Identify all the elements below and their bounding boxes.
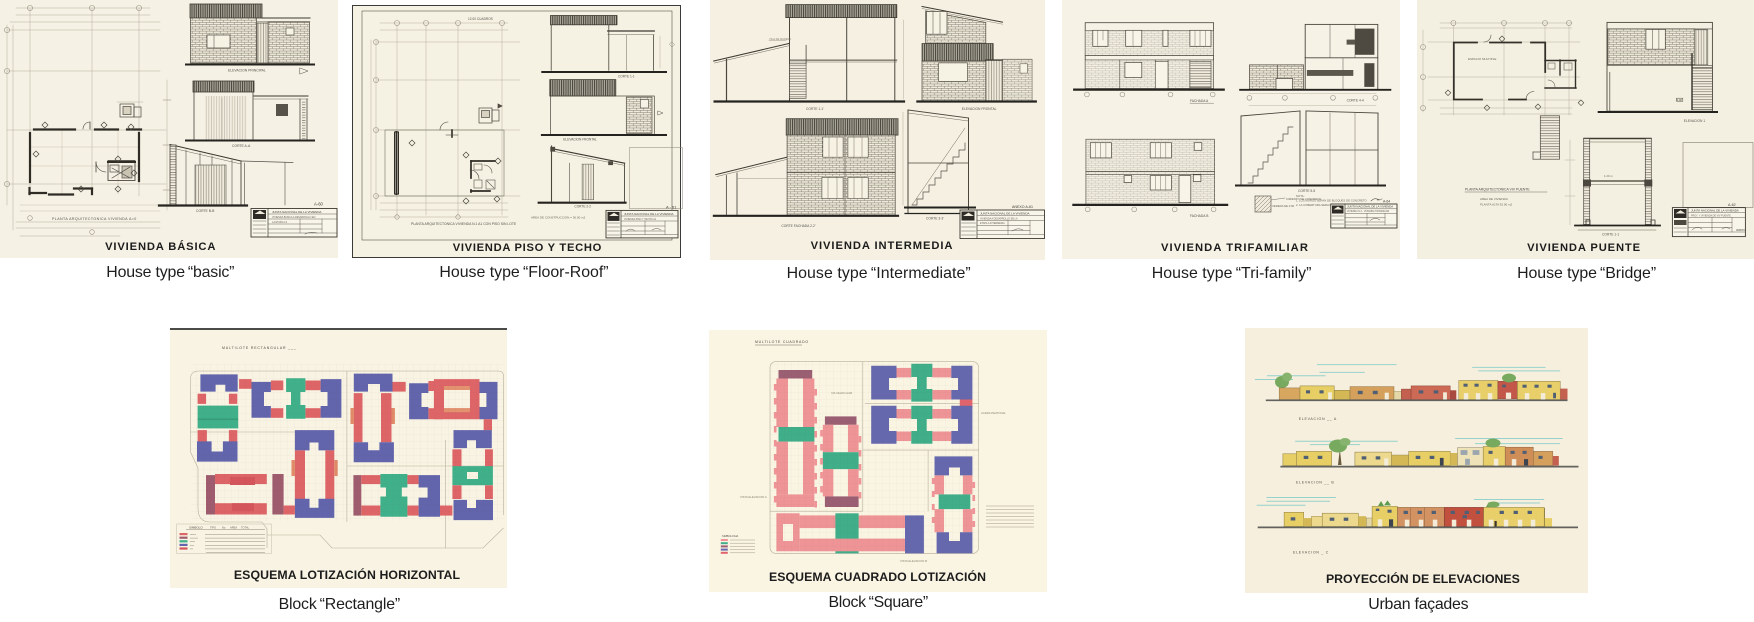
svg-text:A-64: A-64 bbox=[1383, 200, 1390, 204]
svg-text:ESPACIO MULTIPLE: ESPACIO MULTIPLE bbox=[1468, 57, 1496, 61]
svg-text:PLANTA ARQUITECTONICA VIV PU: PLANTA ARQUITECTONICA VIV PUENTE bbox=[1465, 188, 1530, 192]
svg-text:ACERA PEATONAL: ACERA PEATONAL bbox=[981, 411, 1006, 415]
svg-text:CORTE FACHADA 2-2': CORTE FACHADA 2-2' bbox=[781, 224, 815, 228]
svg-text:VISTA ELEVACION B: VISTA ELEVACION B bbox=[900, 559, 927, 563]
svg-text:ETAPA A INTERMEDIA: ETAPA A INTERMEDIA bbox=[980, 222, 1005, 225]
svg-text:JUNTA NACIONAL DE LA VIVIENDA: JUNTA NACIONAL DE LA VIVIENDA bbox=[1691, 208, 1739, 212]
svg-text:CORTE A-A: CORTE A-A bbox=[232, 144, 251, 148]
svg-text:CORTE 2-2: CORTE 2-2 bbox=[574, 205, 591, 209]
svg-text:ELEVACION __ B: ELEVACION __ B bbox=[1296, 481, 1335, 485]
svg-text:AREA DE VIVIENDA: AREA DE VIVIENDA bbox=[1480, 197, 1508, 201]
svg-text:JUNTA NACIONAL DE LA VIVIENDA: JUNTA NACIONAL DE LA VIVIENDA bbox=[272, 210, 322, 214]
svg-text:VIVIENDA A DESARROLLO EN LA: VIVIENDA A DESARROLLO EN LA bbox=[980, 217, 1018, 220]
svg-text:VIVIENDA BASICA A DESARROLLO E: VIVIENDA BASICA A DESARROLLO EN bbox=[272, 216, 316, 219]
svg-text:PLANTA ALTA 35.00 m2: PLANTA ALTA 35.00 m2 bbox=[1480, 203, 1513, 207]
svg-text:1.20 m: 1.20 m bbox=[1604, 174, 1613, 178]
svg-text:A-62: A-62 bbox=[1728, 203, 1736, 207]
svg-text:ELEVACION _ C: ELEVACION _ C bbox=[1293, 551, 1329, 555]
svg-text:JUNTA NACIONAL DE LA VIVIENDA: JUNTA NACIONAL DE LA VIVIENDA bbox=[1347, 205, 1393, 209]
svg-text:MULTILOTE CUADRADO: MULTILOTE CUADRADO bbox=[755, 340, 809, 344]
svg-text:300070: 300070 bbox=[1736, 228, 1745, 232]
svg-text:CORTE 3-3': CORTE 3-3' bbox=[926, 217, 944, 221]
svg-text:JUNTA NACIONAL DE LA VIVIENDA: JUNTA NACIONAL DE LA VIVIENDA bbox=[624, 212, 674, 216]
svg-text:VIGA DE MADERA: VIGA DE MADERA bbox=[769, 37, 791, 41]
svg-text:A-60: A-60 bbox=[314, 202, 324, 207]
svg-text:VIVIENDA N.3 - VIVIENDA TRIF: VIVIENDA N.3 - VIVIENDA TRIFAMILIAR bbox=[1347, 210, 1390, 213]
svg-text:NOTA :: NOTA : bbox=[1296, 194, 1305, 198]
svg-text:ELEVACION __ A: ELEVACION __ A bbox=[1299, 417, 1337, 421]
svg-text:CORTE 1-1': CORTE 1-1' bbox=[806, 107, 824, 111]
svg-text:VEREDA DE 0.60: VEREDA DE 0.60 bbox=[1272, 204, 1295, 208]
svg-text:ELEVACION 1: ELEVACION 1 bbox=[1684, 119, 1706, 123]
svg-text:ANEXO A-61: ANEXO A-61 bbox=[1012, 205, 1033, 209]
svg-text:CORTE 5-5: CORTE 5-5 bbox=[1298, 189, 1315, 193]
svg-text:VIVIENDA PISO Y TECHO A1: VIVIENDA PISO Y TECHO A1 bbox=[624, 218, 657, 221]
svg-text:AREA: AREA bbox=[230, 526, 237, 530]
svg-text:ELEVACION PRINCIPAL: ELEVACION PRINCIPAL bbox=[228, 69, 266, 73]
svg-text:SIMBOLOGIA: SIMBOLOGIA bbox=[722, 534, 739, 538]
svg-text:ELEVACION FRONTAL: ELEVACION FRONTAL bbox=[563, 138, 597, 142]
svg-text:VIA VEHICULAR: VIA VEHICULAR bbox=[831, 391, 852, 395]
svg-text:12.00 CUADROS: 12.00 CUADROS bbox=[468, 17, 493, 21]
svg-text:FACHADA B: FACHADA B bbox=[1190, 214, 1209, 218]
svg-text:PLANTA ARQUITECTONICA VIVIEND: PLANTA ARQUITECTONICA VIVIENDA N.1 A1 CO… bbox=[411, 222, 517, 226]
svg-text:MULTILOTE RECTANGULAR ___: MULTILOTE RECTANGULAR ___ bbox=[222, 346, 297, 350]
svg-text:CORTE 1-1: CORTE 1-1 bbox=[1602, 233, 1619, 237]
svg-text:A - 61: A - 61 bbox=[666, 205, 677, 210]
svg-text:TIPO: TIPO bbox=[210, 526, 216, 530]
svg-text:AREA DE CONSTRUCCION = 36.00: AREA DE CONSTRUCCION = 36.00 m2 bbox=[531, 216, 586, 220]
svg-text:No: No bbox=[222, 526, 226, 530]
svg-text:0.90: 0.90 bbox=[1677, 98, 1683, 102]
svg-text:LA ETAPA A-0: LA ETAPA A-0 bbox=[272, 221, 288, 224]
svg-text:CORTE 1-1: CORTE 1-1 bbox=[618, 75, 635, 79]
svg-text:1. LOS MUROS SERAN DE BLOQUES: 1. LOS MUROS SERAN DE BLOQUES DE CONCRET… bbox=[1296, 199, 1367, 203]
svg-text:CORTE 4-4: CORTE 4-4 bbox=[1347, 99, 1364, 103]
svg-text:FACHADA A: FACHADA A bbox=[1190, 99, 1209, 103]
svg-text:JUNTA NACIONAL DE LA VIVIENDA: JUNTA NACIONAL DE LA VIVIENDA bbox=[980, 211, 1030, 215]
svg-text:PROY. Y VIVIENDA DE VIV PUENTE: PROY. Y VIVIENDA DE VIV PUENTE bbox=[1691, 214, 1731, 217]
svg-text:TOTAL: TOTAL bbox=[241, 526, 250, 530]
svg-text:PLANTA ARQUITECTONICA VIVIEN: PLANTA ARQUITECTONICA VIVIENDA A=0 bbox=[52, 217, 137, 221]
svg-text:SIMBOLO: SIMBOLO bbox=[189, 526, 203, 530]
svg-text:CORTE B-B: CORTE B-B bbox=[196, 209, 215, 213]
svg-text:VISTA ELEVACION A: VISTA ELEVACION A bbox=[740, 495, 767, 499]
svg-text:ELEVACION FRONTAL: ELEVACION FRONTAL bbox=[962, 107, 997, 111]
